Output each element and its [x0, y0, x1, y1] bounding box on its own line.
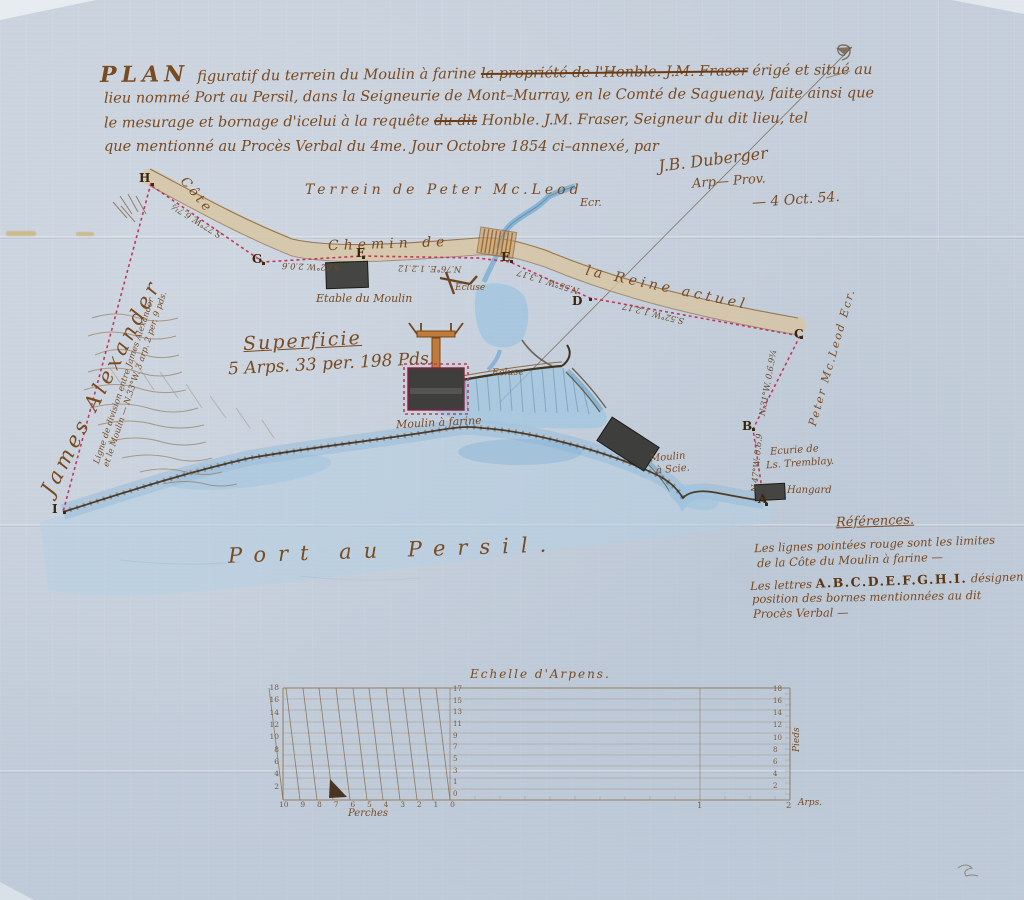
neighbor-label-mcleod-esq: Ecr.	[580, 196, 602, 209]
corner-tr	[952, 0, 1024, 14]
marker-g: G	[252, 252, 262, 266]
stable-label: Etable du Moulin	[316, 292, 412, 305]
struck-text: la propriété de l'Honble. J.M. Fraser	[481, 63, 748, 82]
neighbor-label-mcleod-top: Terrein de Peter Mc.Leod	[305, 182, 583, 198]
marker-h: H	[139, 171, 150, 185]
marker-i: I	[52, 502, 58, 516]
scale-one-arpent: 1	[697, 801, 702, 811]
scale-arp-label: Arps.	[798, 798, 822, 808]
upper-sluice-label: Ecluse	[455, 283, 485, 293]
marker-d: D	[572, 294, 582, 308]
marker-c: C	[794, 327, 804, 341]
corner-scribble	[958, 865, 978, 876]
corner-tl	[0, 0, 96, 20]
measurement-fe: N.76°E. 1.2.12	[398, 262, 461, 273]
marker-b: B	[742, 419, 752, 433]
references-title: Références.	[836, 513, 915, 531]
title-line-4: que mentionné au Procès Verbal du 4me. J…	[104, 139, 659, 155]
dam-label: Ecluse	[492, 366, 524, 378]
scale-pieds-label: Pieds	[792, 727, 802, 752]
shed-label: Hangard	[787, 485, 832, 496]
measurement-gf: S.82°W. 2.0.6	[282, 260, 340, 272]
title-plan-word: PLAN	[100, 61, 189, 88]
scale-right-ticks: 18161412108642	[773, 686, 783, 790]
scale-left-ticks: 18161412108642	[263, 684, 279, 790]
marker-e: E	[501, 250, 510, 264]
map-drawing	[0, 0, 1024, 900]
scale-perches-label: Perches	[348, 808, 388, 819]
scale-two-arpent: 2	[786, 801, 791, 811]
scale-triangle-mark	[329, 779, 347, 798]
marker-a: A	[758, 492, 767, 506]
map-sheet: PLANfiguratif du terrein du Moulin à far…	[0, 0, 1024, 900]
corner-bl	[0, 882, 34, 900]
scale-drawing	[269, 688, 790, 800]
scale-title: Echelle d'Arpens.	[470, 667, 611, 681]
struck-text: du dit	[434, 113, 477, 129]
references-line-5: Procès Verbal —	[753, 605, 849, 621]
bridge	[477, 227, 517, 258]
scale-middle-ticks: 17151311975310	[453, 686, 463, 798]
marker-f: F	[356, 246, 365, 260]
